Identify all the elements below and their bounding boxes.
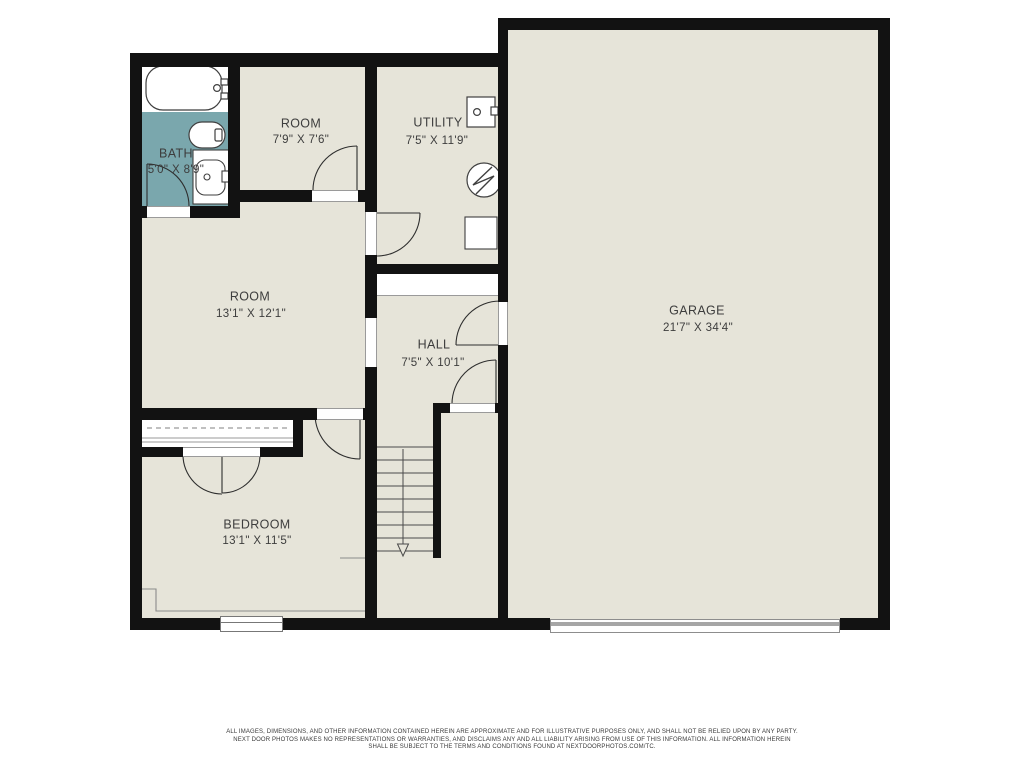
hall-landing-door-threshold	[450, 403, 495, 413]
bedroom-door-threshold	[317, 408, 363, 420]
wall-utility-bottom	[365, 264, 508, 274]
wall-main-left	[130, 53, 142, 630]
small-room-door-arc	[313, 146, 357, 190]
bathtub-icon	[146, 66, 228, 110]
main-room-label: ROOM	[230, 289, 270, 304]
room-hall-opening	[365, 318, 377, 367]
small-room-door-threshold	[312, 190, 358, 202]
wall-garage-right	[878, 18, 890, 630]
wall-bottom-right	[840, 618, 890, 630]
stairs-down	[375, 447, 433, 556]
wall-garage-top	[498, 18, 890, 30]
stairs-down-arrow	[398, 544, 409, 556]
disclaimer: ALL IMAGES, DIMENSIONS, AND OTHER INFORM…	[0, 729, 1024, 752]
main-room-dims: 13'1" X 12'1"	[216, 306, 286, 320]
wall-bottom-mid	[283, 618, 550, 630]
wall-bedroom-top-a	[130, 408, 317, 420]
bath-dims: 5'0" X 8'9"	[148, 162, 205, 176]
closet-door-threshold	[183, 447, 260, 457]
utility-dims: 7'5" X 11'9"	[406, 133, 468, 147]
wall-bottom-left	[130, 618, 220, 630]
disclaimer-line-3: SHALL BE SUBJECT TO THE TERMS AND CONDIT…	[0, 744, 1024, 752]
wall-bath-bottom-b	[190, 206, 240, 218]
garage-dims: 21'7" X 34'4"	[663, 320, 733, 334]
bedroom-dims: 13'1" X 11'5"	[222, 533, 291, 547]
small-room-label: ROOM	[281, 116, 321, 131]
disclaimer-line-1: ALL IMAGES, DIMENSIONS, AND OTHER INFORM…	[0, 729, 1024, 737]
bedroom-step-lines	[142, 558, 368, 611]
wall-garage-left-b	[498, 345, 508, 618]
wall-mid-vertical-c	[365, 367, 377, 618]
utility-door-threshold	[365, 212, 377, 255]
small-room-dims: 7'9" X 7'6"	[273, 132, 330, 146]
bath-door-threshold	[147, 206, 190, 218]
floor-plan: BATH 5'0" X 8'9" ROOM 7'9" X 7'6" UTILIT…	[0, 0, 1024, 768]
washer-icon	[467, 97, 498, 127]
bedroom-door-arc	[315, 414, 360, 459]
toilet-icon	[189, 122, 225, 148]
wall-bedroom-top-b	[363, 408, 377, 420]
wall-closet-bottom-b	[260, 447, 303, 457]
wall-garage-left-a	[498, 18, 508, 302]
garage-door	[550, 619, 840, 633]
wall-mid-vertical-a	[365, 53, 377, 212]
hall-label: HALL	[418, 337, 451, 352]
bedroom-window	[220, 616, 283, 632]
wall-closet-bottom-a	[130, 447, 183, 457]
wall-smallroom-bottom-a	[228, 190, 312, 202]
hall-garage-door-threshold	[498, 302, 508, 345]
disclaimer-line-2: NEXT DOOR PHOTOS MAKES NO REPRESENTATION…	[0, 737, 1024, 745]
wall-stairs-right	[433, 403, 441, 558]
closet-double-door-arcs	[183, 455, 260, 494]
hall-garage-door-arc	[456, 301, 500, 345]
utility-door-arc	[377, 213, 420, 256]
water-heater-icon	[467, 163, 501, 197]
plan-linework	[0, 0, 1024, 768]
wall-main-top	[130, 53, 508, 67]
closet-rod	[142, 428, 293, 442]
utility-label: UTILITY	[413, 115, 462, 130]
hall-dims: 7'5" X 10'1"	[401, 355, 464, 369]
vanity-sink-icon	[193, 150, 231, 204]
wall-bath-bottom-a	[130, 206, 147, 218]
bedroom-label: BEDROOM	[223, 517, 290, 532]
garage-label: GARAGE	[669, 303, 725, 318]
appliance-box-icon	[465, 217, 497, 249]
bath-label: BATH	[159, 146, 193, 161]
